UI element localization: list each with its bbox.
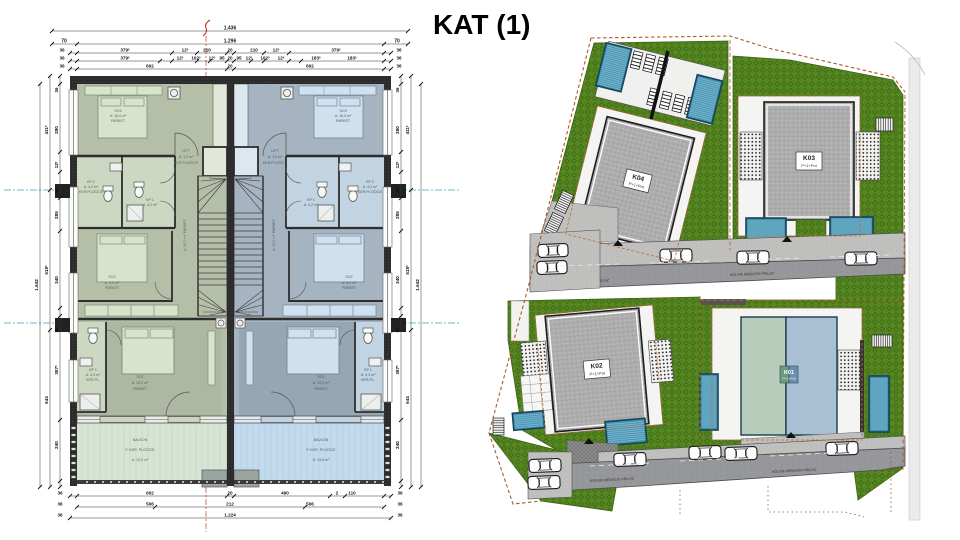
svg-text:36: 36 (395, 327, 400, 333)
svg-text:F. KER. PLOČICE: F. KER. PLOČICE (307, 447, 337, 452)
svg-text:SO1: SO1 (136, 375, 143, 379)
svg-text:A: 4,2 m²: A: 4,2 m² (363, 185, 378, 189)
svg-text:A: 10,7 m² PARKET: A: 10,7 m² PARKET (183, 218, 187, 250)
svg-text:644: 644 (44, 396, 49, 404)
svg-text:36: 36 (395, 87, 400, 93)
svg-text:SO3: SO3 (114, 109, 121, 113)
svg-text:PARKET: PARKET (314, 387, 329, 391)
svg-text:KP 1: KP 1 (307, 198, 315, 202)
svg-text:KP 1: KP 1 (89, 368, 97, 372)
svg-text:A: 16,0 m²: A: 16,0 m² (110, 114, 127, 118)
svg-text:A: 10,7 m² PARKET: A: 10,7 m² PARKET (272, 218, 276, 250)
svg-text:KER.PLOČICE: KER.PLOČICE (263, 160, 288, 165)
svg-text:36: 36 (57, 491, 63, 496)
svg-text:285: 285 (395, 211, 400, 219)
svg-text:KER.PLOČICE: KER.PLOČICE (79, 189, 104, 194)
svg-text:F. KER. PLOČICE: F. KER. PLOČICE (126, 447, 156, 452)
svg-text:1.642: 1.642 (34, 279, 39, 291)
svg-text:36: 36 (54, 327, 59, 333)
svg-text:2: 2 (336, 491, 339, 496)
svg-text:A: 9,0 m²: A: 9,0 m² (342, 281, 357, 285)
svg-text:32: 32 (395, 187, 400, 193)
svg-text:BALKON: BALKON (133, 438, 148, 442)
svg-text:A: 13,9 m²: A: 13,9 m² (313, 458, 330, 462)
svg-text:KP 1: KP 1 (364, 368, 372, 372)
svg-text:602: 602 (146, 64, 154, 69)
svg-text:KP 2: KP 2 (87, 180, 95, 184)
svg-text:PARKET: PARKET (133, 387, 148, 391)
svg-text:PARKET: PARKET (105, 286, 120, 290)
svg-text:280: 280 (395, 126, 400, 134)
svg-text:36: 36 (59, 64, 65, 69)
svg-text:36: 36 (396, 56, 402, 61)
svg-text:LIFT: LIFT (182, 149, 190, 153)
svg-text:240: 240 (54, 441, 59, 449)
svg-text:36: 36 (397, 513, 403, 518)
svg-text:SO3: SO3 (339, 109, 346, 113)
svg-text:340: 340 (54, 276, 59, 284)
svg-text:1.436: 1.436 (224, 26, 237, 32)
svg-text:32: 32 (54, 187, 59, 193)
svg-text:36: 36 (59, 48, 65, 53)
svg-text:36: 36 (397, 491, 403, 496)
svg-text:KAT (1): KAT (1) (433, 9, 530, 40)
svg-text:36: 36 (54, 87, 59, 93)
svg-text:506: 506 (146, 502, 154, 507)
svg-text:PARKET: PARKET (336, 119, 351, 123)
svg-text:PARKET: PARKET (111, 119, 126, 123)
svg-text:A: 4,2 m²: A: 4,2 m² (304, 203, 319, 207)
svg-text:A: 1,2 m²: A: 1,2 m² (268, 155, 283, 159)
svg-text:1.224: 1.224 (224, 513, 236, 518)
svg-text:36: 36 (396, 48, 402, 53)
svg-text:KP 1: KP 1 (146, 198, 154, 202)
svg-text:1.642: 1.642 (415, 279, 420, 291)
svg-text:LIFT: LIFT (271, 149, 279, 153)
svg-text:SO1: SO1 (317, 375, 324, 379)
svg-text:280: 280 (54, 126, 59, 134)
svg-text:95: 95 (236, 56, 242, 61)
svg-text:A: 19,2 m²: A: 19,2 m² (313, 381, 330, 385)
svg-text:602: 602 (306, 64, 314, 69)
svg-text:212: 212 (226, 502, 234, 507)
svg-text:P+1+Pot: P+1+Pot (801, 163, 817, 168)
svg-text:36: 36 (397, 502, 403, 507)
svg-text:240: 240 (395, 441, 400, 449)
svg-text:KP 2: KP 2 (366, 180, 374, 184)
svg-text:70: 70 (61, 39, 67, 45)
svg-text:K03: K03 (803, 155, 815, 162)
svg-text:36: 36 (57, 502, 63, 507)
svg-text:1.296: 1.296 (224, 39, 237, 45)
svg-text:70: 70 (394, 39, 400, 45)
svg-text:95: 95 (219, 56, 225, 61)
svg-text:506: 506 (306, 502, 314, 507)
svg-text:210: 210 (250, 48, 258, 53)
svg-text:BALKON: BALKON (314, 438, 329, 442)
svg-text:KER.PL.: KER.PL. (361, 378, 375, 382)
svg-text:SO2: SO2 (345, 275, 352, 279)
svg-text:285: 285 (54, 211, 59, 219)
svg-text:P+1+Pot: P+1+Pot (782, 377, 795, 381)
svg-text:SO2: SO2 (108, 275, 115, 279)
svg-text:KER.PLOČICE: KER.PLOČICE (358, 189, 383, 194)
svg-text:A: 9,0 m²: A: 9,0 m² (105, 281, 120, 285)
svg-text:KER.PLOČICE: KER.PLOČICE (174, 160, 199, 165)
svg-text:490: 490 (281, 491, 289, 496)
svg-text:36: 36 (57, 513, 63, 518)
svg-text:36: 36 (59, 56, 65, 61)
svg-text:A: 4,3 m²: A: 4,3 m² (86, 373, 101, 377)
svg-text:602: 602 (146, 491, 154, 496)
svg-text:36: 36 (396, 64, 402, 69)
svg-text:A: 13,9 m²: A: 13,9 m² (132, 458, 149, 462)
svg-text:A: 1,2 m²: A: 1,2 m² (179, 155, 194, 159)
svg-text:K01: K01 (784, 370, 794, 376)
svg-text:A: 16,0 m²: A: 16,0 m² (335, 114, 352, 118)
svg-text:644: 644 (405, 396, 410, 404)
svg-text:A: 4,3 m²: A: 4,3 m² (361, 373, 376, 377)
svg-text:KER.PL.: KER.PL. (86, 378, 100, 382)
svg-text:A: 4,2 m²: A: 4,2 m² (84, 185, 99, 189)
svg-text:A: 19,2 m²: A: 19,2 m² (132, 381, 149, 385)
svg-text:340: 340 (395, 276, 400, 284)
svg-text:A: 4,2 m²: A: 4,2 m² (143, 203, 158, 207)
svg-text:PARKET: PARKET (342, 286, 357, 290)
svg-text:110: 110 (348, 491, 356, 496)
svg-text:210: 210 (203, 48, 211, 53)
svg-text:K02: K02 (590, 362, 603, 370)
